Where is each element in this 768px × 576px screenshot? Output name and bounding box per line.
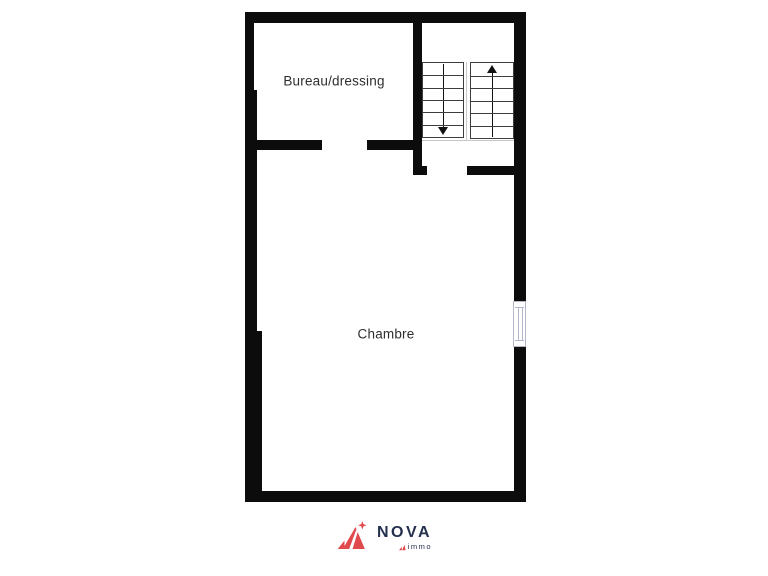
stair-outline: [466, 62, 467, 140]
window-glazing: [518, 307, 523, 341]
wall-stairwell-bottom-right: [467, 166, 514, 175]
wall-stairwell-left: [413, 23, 422, 175]
wall-bureau-bottom-right: [367, 140, 417, 150]
stair-flight-right: [470, 62, 514, 139]
wall-left-lower: [245, 331, 262, 502]
wall-left-middle: [245, 90, 257, 331]
stair-run-line: [492, 71, 493, 137]
room-label-bureau: Bureau/dressing: [283, 74, 384, 89]
nova-logo: NOVA immo: [336, 520, 432, 556]
brand-name: NOVA: [377, 525, 432, 541]
stair-tread: [471, 88, 513, 89]
brand-subname: immo: [408, 543, 432, 551]
stair-tread: [423, 88, 463, 89]
stair-flight-left: [422, 62, 464, 138]
nova-logo-icon: [336, 520, 370, 556]
wall-left-upper: [245, 12, 254, 90]
stair-outline: [422, 140, 514, 141]
stair-run-line: [443, 64, 444, 129]
wall-top: [245, 12, 526, 23]
stair-tread: [471, 101, 513, 102]
stair-tread: [423, 100, 463, 101]
stair-tread: [423, 75, 463, 76]
wall-bottom: [245, 491, 526, 502]
stair-tread: [471, 113, 513, 114]
nova-sub-icon: [399, 544, 406, 551]
floor-plan: Bureau/dressing Chambre NOVA immo: [0, 0, 768, 576]
room-label-chambre: Chambre: [358, 327, 415, 342]
down-arrow-icon: [438, 127, 448, 135]
stair-tread: [471, 126, 513, 127]
stair-tread: [423, 125, 463, 126]
wall-stairwell-bottom-stub: [413, 166, 427, 175]
window-symbol: [513, 301, 526, 347]
stair-tread: [471, 76, 513, 77]
up-arrow-icon: [487, 65, 497, 73]
wall-right: [514, 12, 526, 502]
stair-tread: [423, 112, 463, 113]
wall-bureau-bottom-left: [245, 140, 322, 150]
